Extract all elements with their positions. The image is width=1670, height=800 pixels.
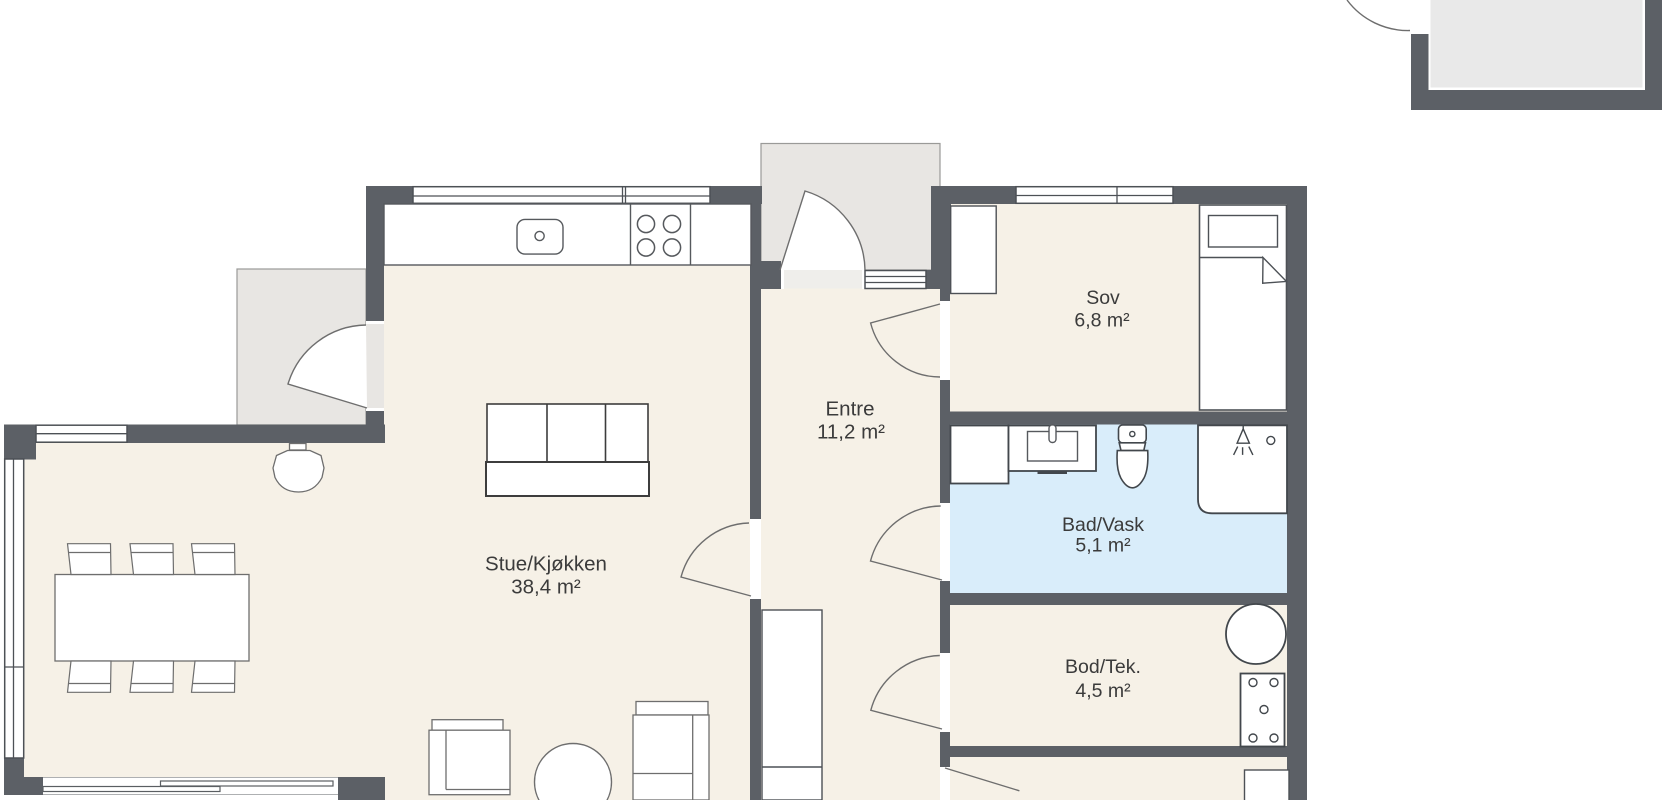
- svg-text:Bad/Vask: Bad/Vask: [1062, 514, 1144, 536]
- svg-text:38,4 m²: 38,4 m²: [511, 576, 581, 599]
- svg-text:5,1 m²: 5,1 m²: [1075, 535, 1131, 557]
- svg-text:6,8 m²: 6,8 m²: [1074, 309, 1130, 331]
- svg-text:Entre: Entre: [826, 398, 875, 421]
- svg-text:Stue/Kjøkken: Stue/Kjøkken: [485, 553, 607, 576]
- svg-text:11,2 m²: 11,2 m²: [817, 421, 885, 444]
- svg-text:4,5 m²: 4,5 m²: [1075, 680, 1131, 702]
- svg-text:Bod/Tek.: Bod/Tek.: [1065, 656, 1141, 678]
- svg-text:Sov: Sov: [1086, 287, 1120, 309]
